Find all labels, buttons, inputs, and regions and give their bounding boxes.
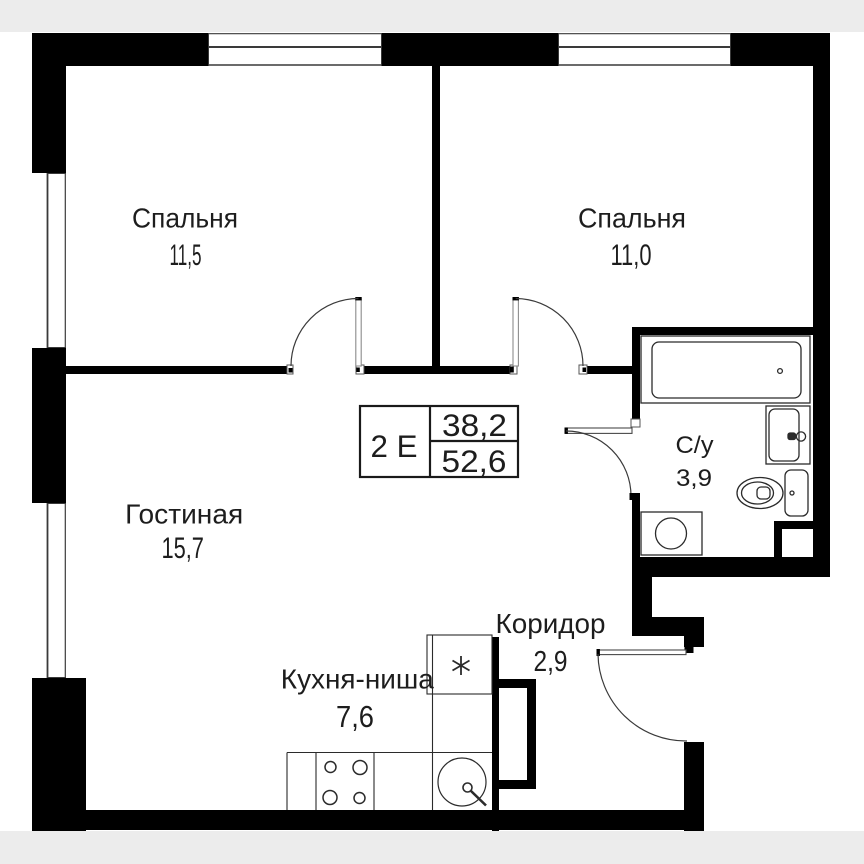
svg-text:2 Е: 2 Е bbox=[371, 428, 418, 464]
svg-text:2,9: 2,9 bbox=[534, 646, 568, 678]
svg-text:С/у: С/у bbox=[676, 432, 715, 459]
svg-text:Гостиная: Гостиная bbox=[125, 499, 243, 530]
svg-text:11,5: 11,5 bbox=[170, 239, 202, 272]
svg-text:52,6: 52,6 bbox=[442, 443, 507, 479]
svg-text:3,9: 3,9 bbox=[676, 465, 712, 492]
svg-text:7,6: 7,6 bbox=[336, 699, 374, 734]
svg-text:Спальня: Спальня bbox=[578, 203, 686, 234]
svg-text:11,0: 11,0 bbox=[611, 239, 652, 272]
svg-text:Кухня-ниша: Кухня-ниша bbox=[281, 664, 434, 695]
svg-text:Коридор: Коридор bbox=[496, 608, 606, 639]
svg-text:Спальня: Спальня bbox=[132, 203, 238, 234]
svg-text:38,2: 38,2 bbox=[442, 407, 507, 443]
svg-text:15,7: 15,7 bbox=[161, 532, 204, 565]
